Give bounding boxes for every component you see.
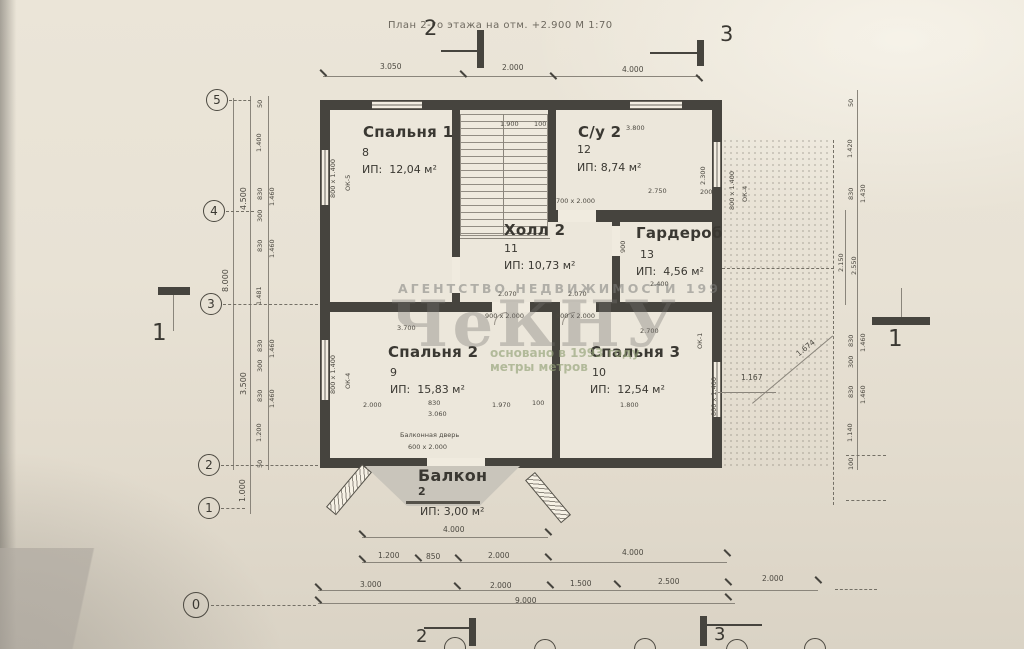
dim-label: 300 xyxy=(257,360,264,372)
dim-label: 2.000 xyxy=(502,64,523,72)
dim-label: 2.000 xyxy=(488,552,509,560)
dim-label: 1.200 xyxy=(256,423,263,442)
dim-label: 2.550 xyxy=(851,256,858,275)
dim-label: 830 xyxy=(848,386,855,398)
dashed-line xyxy=(846,455,886,456)
dim-label: 3.060 xyxy=(428,411,447,418)
dim-label: 2.300 xyxy=(700,166,707,185)
dim-label: 830 xyxy=(428,400,440,407)
tick-mark xyxy=(547,581,554,588)
balcony-door-size: 600 х 2.000 xyxy=(408,444,447,451)
room-number-bedroom2: 9 xyxy=(390,366,397,379)
section-marker-bar xyxy=(697,40,704,66)
tick-mark xyxy=(454,582,461,589)
dim-label: 3.800 xyxy=(626,125,645,132)
dim-line-top xyxy=(323,76,700,77)
staircase xyxy=(460,114,548,236)
dim-line xyxy=(362,562,727,563)
window-tag: ОК-5 xyxy=(345,175,352,191)
tick-mark xyxy=(725,578,732,585)
staircase-divider xyxy=(503,114,504,236)
tick-mark xyxy=(455,554,462,561)
dim-label: 830 xyxy=(257,340,264,352)
section-cut-number-left: 1 xyxy=(152,322,167,345)
floor-plan-photo: План 2-го этажа на отм. +2.900 М 1:70 Сп… xyxy=(0,0,1024,649)
section-marker-bar xyxy=(469,618,476,646)
axis-circle-partial xyxy=(444,637,466,649)
tick-mark xyxy=(724,549,731,556)
axis-dash xyxy=(221,465,318,466)
dim-label: 1.420 xyxy=(847,139,854,158)
dim-line-left-inner xyxy=(268,96,269,470)
door-size-label: 700 х 2.000 xyxy=(556,198,595,205)
room-area-bath: ИП: 8,74 м² xyxy=(577,161,641,174)
window-size-label: 800 х 1.400 xyxy=(729,171,736,210)
axis-circle-4: 4 xyxy=(203,200,225,222)
room-number-balcony: 2 xyxy=(418,485,426,498)
axis-circle-5: 5 xyxy=(206,89,228,111)
axis-circle-0: 0 xyxy=(183,592,209,618)
axis-circle-partial xyxy=(804,638,826,649)
photo-corner-shadow xyxy=(0,548,148,649)
window-bedroom2 xyxy=(321,340,329,400)
axis-number-bottom-3: 3 xyxy=(714,626,725,644)
axis-dash xyxy=(229,100,251,101)
window-tag: ОК-4 xyxy=(345,373,352,389)
tick-mark xyxy=(614,580,621,587)
window-size-label: 800 х 1.400 xyxy=(711,377,718,416)
dim-label: 4.000 xyxy=(622,549,643,557)
tick-mark xyxy=(725,593,732,600)
dim-label: 300 xyxy=(848,356,855,368)
dim-label: 850 xyxy=(426,553,440,561)
axis-dash xyxy=(223,304,318,305)
drawing-title: План 2-го этажа на отм. +2.900 М 1:70 xyxy=(388,20,613,31)
window-tag: ОК-4 xyxy=(742,186,749,202)
dim-line xyxy=(318,590,818,591)
dim-label: 1.900 xyxy=(500,121,519,128)
dim-label: 50 xyxy=(848,99,855,107)
dim-label: 1.481 xyxy=(256,286,263,305)
roof-dashed-line xyxy=(722,268,834,269)
tick-mark xyxy=(545,553,552,560)
dim-label: 2.750 xyxy=(648,188,667,195)
section-cut-bar xyxy=(872,317,930,325)
dim-label: 1.800 xyxy=(620,402,639,409)
room-number-bedroom1: 8 xyxy=(362,146,369,159)
dim-label: 1.500 xyxy=(570,580,591,588)
dim-label: 4.500 xyxy=(240,187,248,210)
room-name-hall: Холл 2 xyxy=(504,221,565,239)
room-name-bedroom1: Спальня 1 xyxy=(363,123,453,141)
room-number-bedroom3: 10 xyxy=(592,366,606,379)
dim-label: 100 xyxy=(532,400,544,407)
dim-label: 8.000 xyxy=(222,269,230,292)
dim-label: 9.000 xyxy=(515,597,536,605)
dim-label: 2.000 xyxy=(363,402,382,409)
dim-label: 1.167 xyxy=(741,374,762,382)
dashed-line xyxy=(835,589,877,590)
dim-label: 1.460 xyxy=(269,187,276,206)
section-cut-line xyxy=(173,295,174,331)
tick-mark xyxy=(815,576,822,583)
dim-label: 2.000 xyxy=(490,582,511,590)
dim-label: 1.460 xyxy=(269,389,276,408)
dim-label: 1.460 xyxy=(860,385,867,404)
dim-label: 1.430 xyxy=(860,184,867,203)
dashed-line xyxy=(846,500,886,501)
room-name-balcony: Балкон xyxy=(418,466,487,485)
window-top-bath xyxy=(630,101,682,109)
section-marker-line xyxy=(707,624,762,626)
dim-label: 830 xyxy=(257,188,264,200)
dim-line-right-outer xyxy=(845,210,846,305)
dim-label: 4.000 xyxy=(622,66,643,74)
section-cut-line xyxy=(901,288,902,318)
dim-line xyxy=(362,537,548,538)
dim-label: 3.000 xyxy=(360,581,381,589)
room-area-bedroom1: ИП: 12,04 м² xyxy=(362,163,437,176)
watermark-tagline: метры метров xyxy=(490,360,588,374)
section-marker-line xyxy=(424,627,469,629)
room-area-hall: ИП: 10,73 м² xyxy=(504,259,575,272)
dim-label: 1.970 xyxy=(492,402,511,409)
section-marker-bar xyxy=(477,30,484,68)
dim-label: 3.050 xyxy=(380,63,401,71)
dim-line-left-outer xyxy=(233,98,234,470)
section-cut-number-right: 1 xyxy=(888,328,903,351)
room-number-wardrobe: 13 xyxy=(640,248,654,261)
axis-dash xyxy=(226,211,254,212)
dim-label: 1.140 xyxy=(847,423,854,442)
balcony-door-caption: Балконная дверь xyxy=(400,432,459,439)
dim-label: 830 xyxy=(848,335,855,347)
axis-dash xyxy=(211,605,316,606)
section-marker-line xyxy=(441,50,477,52)
axis-circle-partial xyxy=(534,639,556,649)
dim-label: 200 xyxy=(700,189,712,196)
tick-mark xyxy=(415,554,422,561)
dim-label: 1.460 xyxy=(860,333,867,352)
axis-circle-partial xyxy=(634,638,656,649)
dim-line xyxy=(718,392,776,393)
dim-label: 2.150 xyxy=(838,253,845,272)
dim-label: 50 xyxy=(257,100,264,108)
watermark-tagline: основано в 1993 году xyxy=(490,346,640,360)
axis-circle-1: 1 xyxy=(198,497,220,519)
dim-line-left-mid xyxy=(250,96,251,514)
dim-label: 900 xyxy=(620,241,627,253)
room-area-balcony: ИП: 3,00 м² xyxy=(420,505,484,518)
wall-stairs-bath xyxy=(548,100,556,222)
dim-label: 1.000 xyxy=(239,479,247,502)
section-marker-bar xyxy=(700,616,707,646)
balcony-wall-left xyxy=(326,464,372,515)
dim-label: 830 xyxy=(257,240,264,252)
dim-label: 300 xyxy=(257,210,264,222)
dim-label: 100 xyxy=(848,458,855,470)
dim-label: 2.500 xyxy=(658,578,679,586)
balcony-wall-right xyxy=(525,472,571,523)
window-bedroom1 xyxy=(321,150,329,205)
dim-label: 1.200 xyxy=(378,552,399,560)
axis-circle-2: 2 xyxy=(198,454,220,476)
axis-number-top-3: 3 xyxy=(720,24,733,45)
axis-dash xyxy=(221,508,245,509)
dim-label: 2.000 xyxy=(762,575,783,583)
dim-label: 100 xyxy=(534,121,546,128)
axis-number-bottom-2: 2 xyxy=(416,628,427,646)
axis-number-top-2: 2 xyxy=(424,18,437,39)
tick-mark xyxy=(545,528,552,535)
dim-label: 4.000 xyxy=(443,526,464,534)
dim-line-right-inner xyxy=(857,90,858,470)
window-bath xyxy=(713,142,721,187)
balcony-edge xyxy=(406,501,480,504)
roof-dashed-outline xyxy=(833,140,834,505)
room-area-bedroom3: ИП: 12,54 м² xyxy=(590,383,665,396)
window-tag: ОК-1 xyxy=(697,333,704,349)
room-area-wardrobe: ИП: 4,56 м² xyxy=(636,265,704,278)
roof-hatch-area xyxy=(722,138,832,466)
section-marker-line xyxy=(650,52,697,54)
dim-label: 1.400 xyxy=(256,133,263,152)
window-size-label: 800 х 1.400 xyxy=(330,355,337,394)
dim-label: 50 xyxy=(257,460,264,468)
dim-label: 830 xyxy=(257,390,264,402)
window-size-label: 800 х 1.400 xyxy=(330,159,337,198)
room-name-bath: С/у 2 xyxy=(578,123,621,141)
axis-circle-3: 3 xyxy=(200,293,222,315)
room-name-wardrobe: Гардероб xyxy=(636,224,723,242)
dim-label: 3.500 xyxy=(240,372,248,395)
room-area-bedroom2: ИП: 15,83 м² xyxy=(390,383,465,396)
section-cut-bar xyxy=(158,287,190,295)
room-number-bath: 12 xyxy=(577,143,591,156)
window-top-bedroom1 xyxy=(372,101,422,109)
room-number-hall: 11 xyxy=(504,242,518,255)
dim-label: 1.460 xyxy=(269,339,276,358)
axis-circle-partial xyxy=(726,639,748,649)
dim-label: 830 xyxy=(848,188,855,200)
dim-label: 1.460 xyxy=(269,239,276,258)
